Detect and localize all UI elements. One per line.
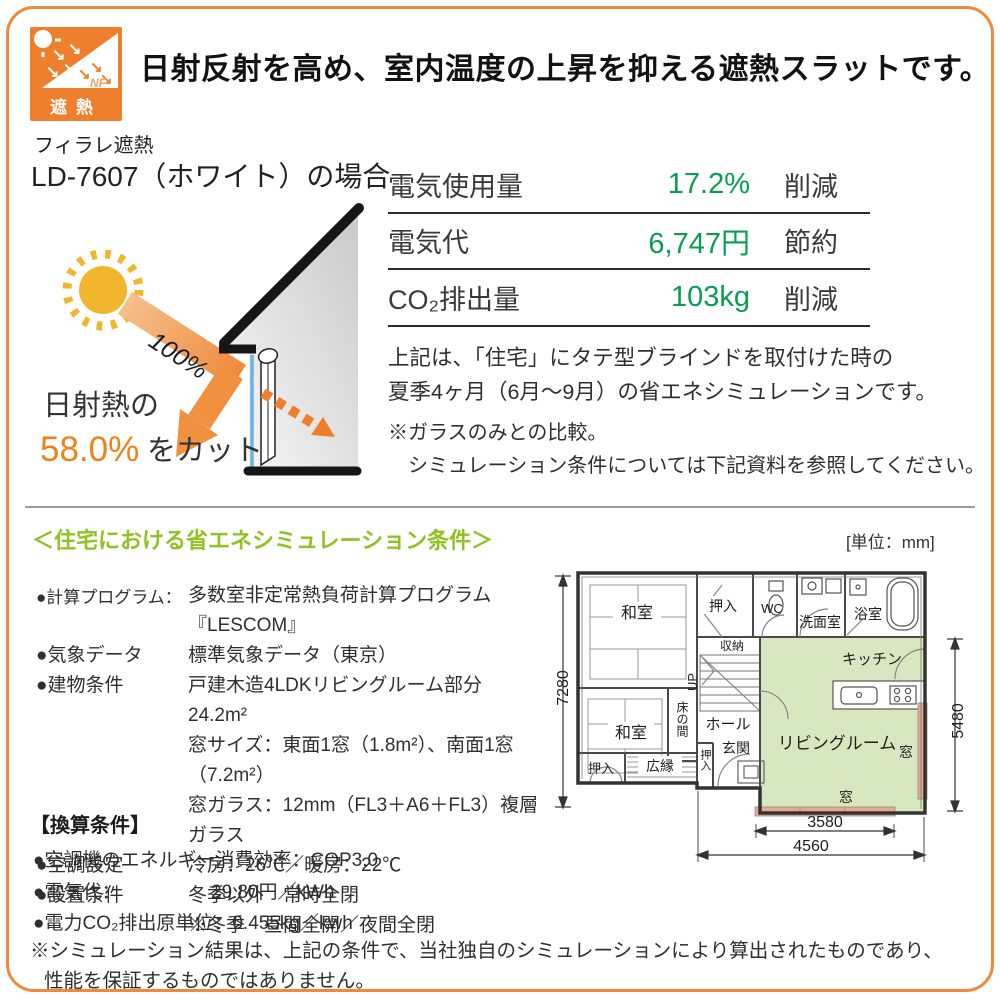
conversion-value: 0.455kg／kwh [232,913,352,934]
stat-label: CO₂排出量 [388,278,600,317]
stat-suffix: 削減 [784,165,870,204]
dim-total-label: 4560 [793,838,829,855]
stat-value: 17.2% [600,168,756,201]
disclaimer-line: 性能を保証するものではありません。 [30,966,943,996]
solar-heat-diagram: 100% 日射熱の 58.0% をカット [25,203,380,505]
room-label-up: UP [685,673,700,691]
stat-suffix: 節約 [784,221,870,260]
badge-nf-text: NF [90,76,107,90]
list-item: ●計算プログラム： 多数室非定常熱負荷計算プログラム『LESCOM』 [36,581,544,641]
svg-text:↘: ↘ [68,41,81,58]
condition-line: 標準気象データ（東京） [188,641,544,671]
room-label-senmenshitsu: 洗面室 [799,614,841,630]
room-label-hall: ホール [705,716,750,733]
note-line: シミュレーション条件については下記資料を参照してください。 [388,450,985,483]
conversion-list: ●空調機のエネルギー消費効率：COP3.0 ●電気代：29.80円／kWh ●電… [33,845,378,940]
dim-window-label: 3580 [807,814,843,831]
shanetsu-badge-icon: ↘ ↘ ↘ ↘ ↘ ↘ ↘ NF 遮熱 [30,27,122,121]
condition-line: 窓サイズ：東面1窓（1.8m²）、南面1窓（7.2m²） [188,731,544,791]
kitchen-counter [833,681,925,709]
dim-left-label: 7280 [555,670,572,706]
room-label-washitsu1: 和室 [621,604,653,622]
room-label-living: リビングルーム [778,734,897,753]
simulation-summary: 上記は、「住宅」にタテ型ブラインドを取付けた時の 夏季4ヶ月（6月～9月）の省エ… [388,341,937,409]
page-title: 日射反射を高め、室内温度の上昇を抑える遮熱スラットです。 [140,44,990,88]
comparison-note: ※ガラスのみとの比較。 シミュレーション条件については下記資料を参照してください… [388,417,985,483]
dim-right-label: 5480 [950,703,967,739]
condition-line: 戸建木造4LDKリビングルーム部分 24.2m² [188,671,544,731]
list-item: ●気象データ 標準気象データ（東京） [36,641,544,671]
room-label-washitsu2: 和室 [615,724,647,742]
condition-line: 多数室非定常熱負荷計算プログラム『LESCOM』 [188,581,544,641]
stat-suffix: 削減 [784,278,870,317]
list-item: ●電力CO₂排出原単位：0.455kg／kwh [33,908,378,940]
cut-prefix-label: 日射熱の [43,389,159,422]
product-series-label: フィラレ遮熱 [34,129,154,158]
svg-text:↘: ↘ [78,66,91,83]
room-label-hiroen: 広縁 [646,758,674,774]
table-row: 電気使用量 17.2% 削減 [388,157,870,214]
window-right-label: 窓 [899,744,913,760]
room-label-genkan: 玄関 [722,740,750,756]
condition-label: ●計算プログラム： [36,581,188,641]
note-line: ※ガラスのみとの比較。 [388,417,985,450]
room-label-yokushitsu: 浴室 [854,606,882,622]
stat-value: 103kg [600,281,756,314]
stat-label: 電気代 [388,221,600,260]
svg-text:↘: ↘ [46,64,59,81]
conditions-heading: ＜住宅における省エネシミュレーション条件＞ [32,523,493,555]
list-item: ●空調機のエネルギー消費効率：COP3.0 [33,845,378,877]
brochure-page: ↘ ↘ ↘ ↘ ↘ ↘ ↘ NF 遮熱 日射反射を高め、室内温度の上昇を抑える遮… [0,0,1000,1000]
table-row: CO₂排出量 103kg 削減 [388,270,870,327]
window-bottom-label: 窓 [839,789,853,805]
conversion-value: COP3.0 [310,850,378,871]
product-model-label: LD-7607（ホワイト）の場合 [31,155,390,195]
house-wall-section [222,209,358,473]
badge-shanetsu-text: 遮熱 [50,97,102,117]
list-item: ●電気代：29.80円／kWh [33,877,378,909]
section-divider [25,506,975,508]
conversion-label: ●空調機のエネルギー消費効率： [33,850,310,871]
cut-value-label: 58.0% [40,430,139,469]
table-row: 電気代 6,747円 節約 [388,214,870,271]
savings-table: 電気使用量 17.2% 削減 電気代 6,747円 節約 CO₂排出量 103k… [388,157,870,327]
conversion-label: ●電力CO₂排出原単位： [33,913,232,934]
unit-label: [単位：mm] [846,528,935,553]
disclaimer: ※シミュレーション結果は、上記の条件で、当社独自のシミュレーションにより算出され… [30,936,943,996]
room-label-oshiire-left: 押入 [588,761,614,776]
room-label-tokonoma: 床の間 [675,701,689,737]
svg-text:↘: ↘ [63,61,76,78]
conversion-value: 29.80円／kWh [211,882,335,903]
cut-suffix-label: をカット [147,435,263,467]
floor-plan: 和室 和室 押入 WC 洗面室 浴室 収納 UP ホール 床の間 玄関 押入 広… [550,551,995,869]
room-label-oshiire-top: 押入 [709,598,737,614]
room-label-shuno: 収納 [720,639,744,653]
summary-line: 上記は、「住宅」にタテ型ブラインドを取付けた時の [388,341,937,375]
conversion-heading: 【換算条件】 [30,809,150,838]
room-label-kitchen: キッチン [842,651,902,668]
disclaimer-line: ※シミュレーション結果は、上記の条件で、当社独自のシミュレーションにより算出され… [30,936,943,966]
stat-value: 6,747円 [600,220,756,262]
room-label-oshiire-right: 押入 [699,748,712,771]
condition-label: ●気象データ [36,641,188,671]
conversion-label: ●電気代： [33,877,211,909]
room-label-wc: WC [761,601,783,616]
condition-line: 窓ガラス：12mm（FL3＋A6＋FL3）複層ガラス [188,791,544,851]
summary-line: 夏季4ヶ月（6月～9月）の省エネシミュレーションです。 [388,375,937,409]
stat-label: 電気使用量 [388,165,600,204]
